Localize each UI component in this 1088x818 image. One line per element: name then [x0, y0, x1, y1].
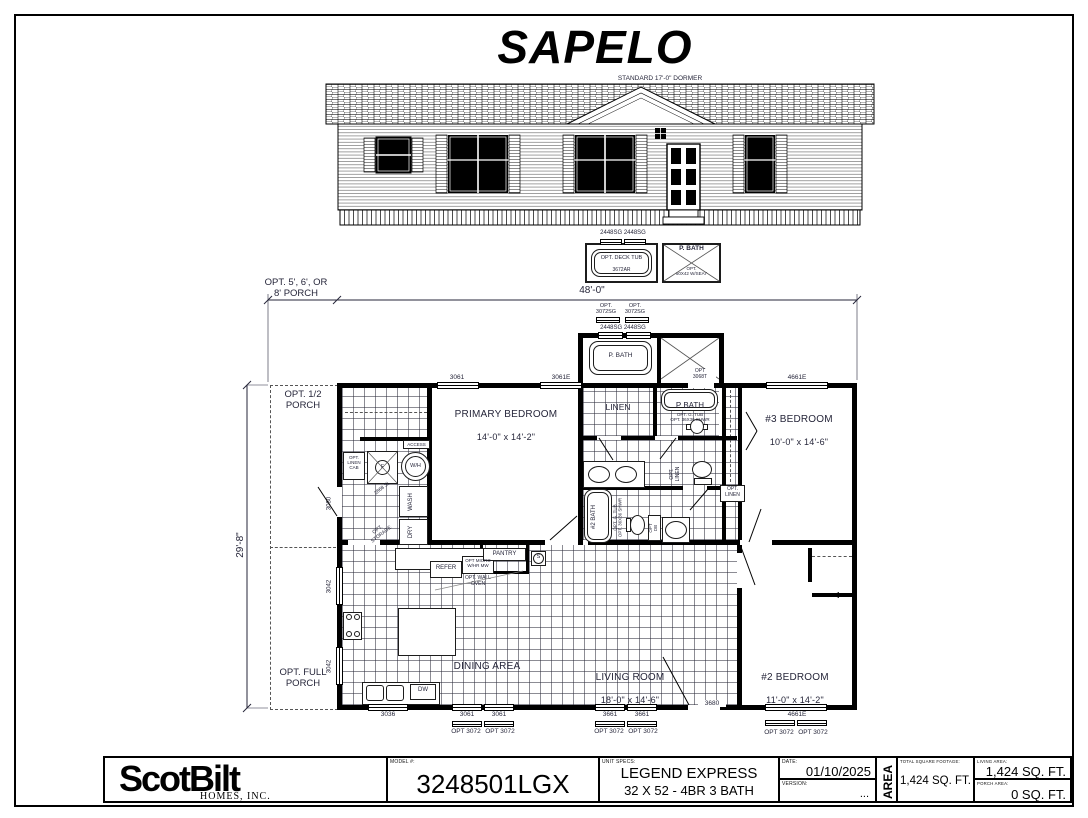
window-label: 4661E: [779, 374, 815, 381]
kitchen-island: [398, 608, 456, 656]
specs-line2: 32 X 52 - 4BR 3 BATH: [600, 783, 778, 798]
window-3036: [368, 704, 408, 711]
refer-label: REFER: [430, 565, 462, 572]
opt-window-bar: [625, 317, 649, 323]
dining-area-label: DINING AREA: [427, 661, 547, 673]
bedroom2-label: #2 BEDROOM 11'-0" x 14'-2": [730, 660, 860, 706]
window-label: 3042: [327, 573, 336, 601]
opt-linen-cab-label: OPT. LINEN CAB: [343, 455, 365, 471]
titleblock-date-cell: DATE: 01/10/2025: [778, 756, 877, 780]
dormer-note: STANDARD 17'-0" DORMER: [585, 75, 735, 82]
model-label: MODEL #:: [390, 759, 415, 765]
window-label: 3061E: [543, 374, 579, 381]
deck-tub-size: 3672AR: [591, 268, 652, 274]
opt-window-bar: [627, 721, 657, 727]
drawing-sheet: SAPELO STANDARD 17'-0" DORMER: [0, 0, 1088, 818]
opt-window-bar: [765, 720, 795, 726]
window-3042: [336, 647, 343, 685]
vanity-sink: [615, 466, 637, 483]
window-label: 4661E: [779, 711, 815, 718]
window-label: 3061: [452, 711, 482, 718]
bath2-opt-label: OPT. G. TUB OPT. 36X36 SHWR: [613, 493, 624, 543]
porch-divider: [270, 547, 336, 548]
dryer-label: DRY: [408, 517, 418, 547]
opt-3072sg-label: OPT. 3072SG: [621, 303, 649, 316]
front-elevation-drawing: [320, 82, 880, 230]
door-3080-opening: [337, 487, 342, 517]
titleblock-total-cell: TOTAL SQUARE FOOTAGE: 1,424 SQ. FT.: [896, 756, 975, 803]
detail-pbath-seat: OPT. 60X42 W/SEAT: [662, 266, 721, 276]
room-size: 14'-0" x 14'-2": [477, 432, 535, 442]
bath2-sink: [665, 521, 687, 539]
hall-toilet-tank: [694, 478, 712, 485]
shelf-label: S: [531, 554, 546, 560]
opt-window-bar: [797, 720, 827, 726]
dishwasher-label: DW: [410, 687, 436, 694]
room-name: PRIMARY BEDROOM: [455, 409, 558, 420]
total-value: 1,424 SQ. FT.: [898, 775, 973, 787]
opt-window-bar: [595, 721, 625, 727]
bump-window: [598, 332, 623, 339]
version-value: ...: [860, 788, 869, 800]
pbath-opt-label: OPT. G. TUB OPT. 36X36 SHWR: [654, 412, 726, 422]
company-logo-sub: HOMES, INC.: [200, 791, 271, 802]
bath2-label: #2 BATH: [591, 492, 603, 542]
opt-window-bar: [596, 317, 620, 323]
room-size: 10'-0" x 14'-6": [770, 437, 828, 447]
date-value: 01/10/2025: [806, 764, 871, 779]
pantry-label: PANTRY: [483, 551, 526, 558]
window-label: 3036: [374, 711, 402, 718]
deck-tub-label: OPT. DECK TUB: [591, 255, 652, 261]
opt-full-porch-label: OPT. FULL PORCH: [272, 668, 334, 690]
primary-bedroom-label: PRIMARY BEDROOM 14'-0" x 14'-2": [440, 397, 572, 443]
pbath-room-label: P BATH: [658, 401, 722, 410]
bump-window: [626, 332, 651, 339]
opt-db-label: OPT DB: [648, 515, 660, 541]
version-label: VERSION:: [782, 781, 808, 787]
bedroom3-label: #3 BEDROOM 10'-0" x 14'-6": [734, 402, 864, 448]
opt-window-bar: [484, 721, 514, 727]
titleblock-porch-cell: PORCH AREA: 0 SQ. FT.: [973, 778, 1072, 803]
washer-label: WASH: [408, 487, 418, 517]
opt-linen-vertical-label: OPT. LINEN: [670, 460, 682, 488]
window-label: OPT 3072: [592, 728, 626, 735]
window-3061: [452, 704, 482, 711]
titleblock-specs-cell: UNIT SPECS: LEGEND EXPRESS 32 X 52 - 4BR…: [598, 756, 780, 803]
access-label: ACCESS: [403, 442, 430, 447]
porch-option-note: OPT. 5', 6', OR 8' PORCH: [248, 278, 344, 300]
room-size: 18'-0" x 14'-6": [601, 695, 659, 705]
opt-3072sg-label: OPT. 3072SG: [592, 303, 620, 316]
window-4661e: [766, 382, 828, 389]
door-3068t-opening: [688, 383, 714, 388]
window-label: 3061: [484, 711, 514, 718]
window-label: OPT 3072: [626, 728, 660, 735]
detail-window: [600, 239, 622, 245]
opt-micro-label: OPT MICRO W/HR MW: [462, 558, 494, 568]
room-size: 11'-0" x 14'-2": [766, 695, 824, 705]
bump-pbath-label: P. BATH: [589, 352, 652, 359]
window-label: OPT 3072: [449, 728, 483, 735]
door-label: 3080: [327, 490, 336, 518]
kitchen-sink: [366, 685, 384, 701]
window-3061: [484, 704, 514, 711]
window-label: OPT 3072: [796, 729, 830, 736]
window-3042: [336, 567, 343, 605]
titleblock-version-cell: VERSION: ...: [778, 778, 877, 803]
window-label: 3042: [327, 653, 336, 681]
opt-window-bar: [452, 721, 482, 727]
water-heater-label: W/H: [401, 463, 430, 469]
linen-label: LINEN: [586, 403, 650, 413]
window-label: OPT 3072: [762, 729, 796, 736]
room-name: #2 BEDROOM: [761, 672, 829, 683]
porch-value: 0 SQ. FT.: [1011, 787, 1066, 802]
opt-wall-oven-label: OPT. WALL OVEN: [458, 576, 498, 588]
room-name: #3 BEDROOM: [765, 414, 833, 425]
living-room-label: LIVING ROOM 18'-0" x 14'-6": [565, 660, 695, 706]
window-label: 3661: [627, 711, 657, 718]
detail-window: [624, 239, 646, 245]
model-number: 3248501LGX: [388, 769, 598, 800]
opt-3068t-door-label: OPT 3068T: [684, 369, 716, 381]
window-label: OPT 3072: [483, 728, 517, 735]
titleblock-living-cell: LIVING AREA: 1,424 SQ. FT.: [973, 756, 1072, 780]
door-label: 3680: [698, 700, 726, 707]
plan-title: SAPELO: [435, 20, 755, 74]
vanity-sink: [588, 466, 610, 483]
bump-window-label: 2448SG 2448SG: [590, 325, 656, 332]
date-label: DATE:: [782, 759, 797, 765]
detail-pbath-label: P. BATH: [662, 245, 721, 252]
detail-window-label: 2448SG 2448SG: [588, 230, 658, 237]
total-label: TOTAL SQUARE FOOTAGE:: [900, 759, 960, 764]
titleblock-logo-cell: ScotBilt HOMES, INC.: [103, 756, 388, 803]
window-3061: [437, 382, 479, 389]
shower-f-label: F: [375, 464, 390, 470]
width-dimension: 48'-0": [560, 285, 624, 297]
bath2-toilet: [630, 515, 645, 535]
opt-half-porch-label: OPT. 1/2 PORCH: [272, 390, 334, 412]
specs-line1: LEGEND EXPRESS: [600, 765, 778, 782]
porch-label: PORCH AREA:: [977, 781, 1009, 786]
titleblock-model-cell: MODEL #: 3248501LGX: [386, 756, 600, 803]
opt-linen-box-label: OPT. LINEN: [720, 487, 745, 499]
room-name: LIVING ROOM: [596, 672, 665, 683]
area-vertical-label: AREA: [881, 762, 895, 802]
hall-toilet: [692, 461, 712, 478]
window-label: 3661: [595, 711, 625, 718]
window-3061e: [540, 382, 582, 389]
depth-dimension: 29'-8": [235, 520, 247, 570]
window-label: 3061: [441, 374, 473, 381]
titleblock-area-cell: AREA: [875, 756, 898, 803]
living-value: 1,424 SQ. FT.: [986, 764, 1066, 779]
kitchen-sink: [386, 685, 404, 701]
